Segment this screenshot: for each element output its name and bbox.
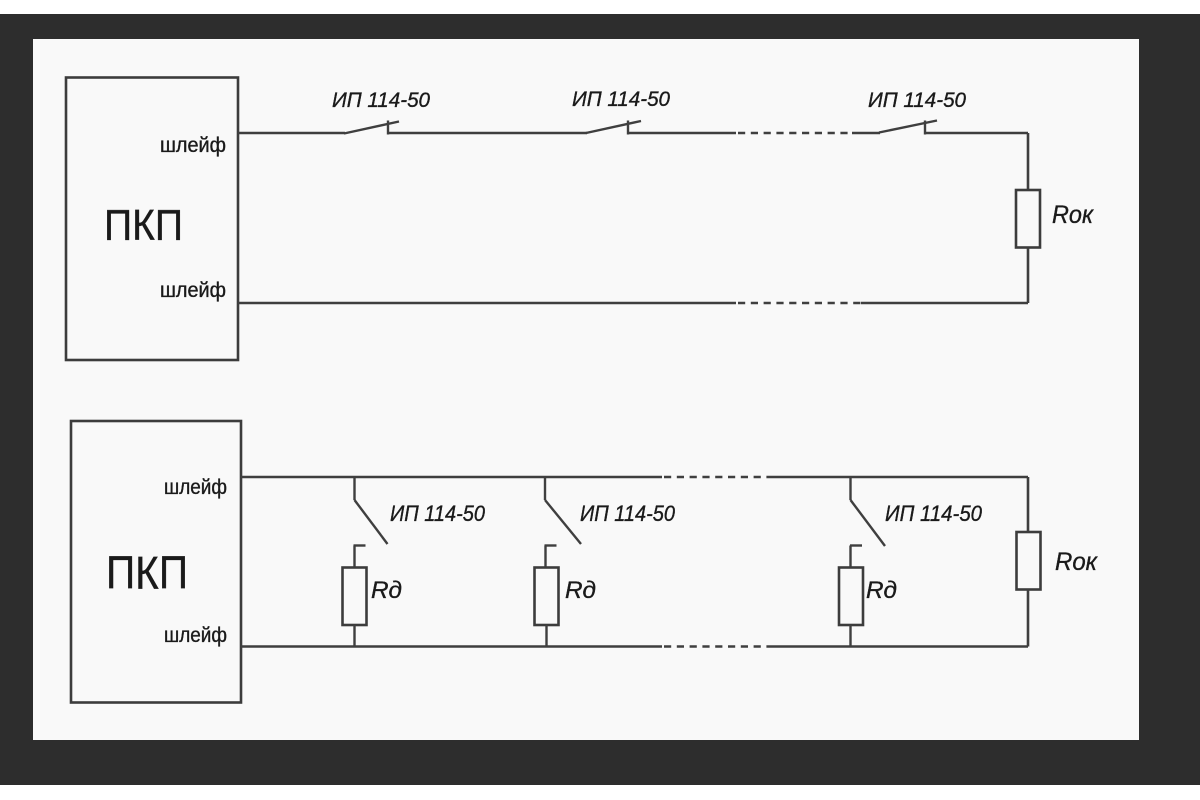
svg-text:шлейф: шлейф [160, 279, 226, 302]
svg-text:шлейф: шлейф [160, 134, 226, 157]
svg-text:шлейф: шлейф [164, 476, 227, 499]
svg-text:Rд: Rд [371, 577, 402, 604]
svg-text:ИП 114-50: ИП 114-50 [390, 501, 486, 526]
svg-text:ИП 114-50: ИП 114-50 [868, 89, 966, 112]
svg-text:Rок: Rок [1055, 548, 1098, 576]
svg-text:Rд: Rд [565, 577, 596, 604]
svg-text:ИП 114-50: ИП 114-50 [332, 89, 430, 112]
svg-text:ПКП: ПКП [104, 201, 183, 250]
svg-text:Rок: Rок [1052, 201, 1094, 229]
svg-text:Rд: Rд [866, 577, 897, 604]
svg-text:ИП 114-50: ИП 114-50 [885, 501, 983, 526]
svg-text:ИП 114-50: ИП 114-50 [580, 501, 676, 526]
svg-text:ИП 114-50: ИП 114-50 [572, 88, 670, 111]
svg-text:ПКП: ПКП [106, 547, 188, 599]
svg-text:шлейф: шлейф [164, 624, 227, 647]
